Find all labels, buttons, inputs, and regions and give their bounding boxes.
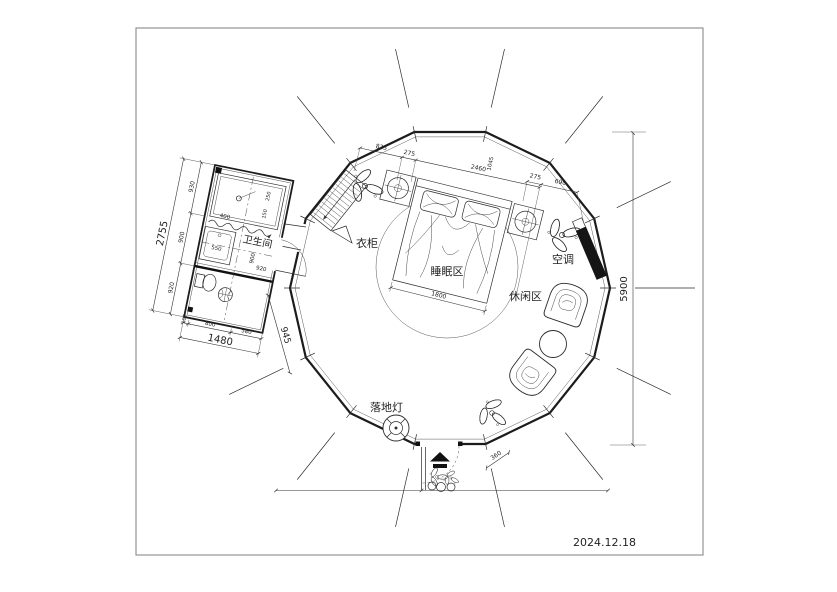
wardrobe-label: 衣柜: [356, 236, 378, 250]
entrance-opening: [417, 441, 461, 449]
date-text: 2024.12.18: [573, 536, 636, 549]
sleeping-label: 睡眠区: [431, 265, 464, 278]
side-table: [540, 331, 567, 358]
dim-5900: 5900: [619, 276, 630, 301]
wall-post: [187, 307, 193, 313]
door-jamb-right: [458, 442, 463, 447]
floorplan-page: 930 900 920 2755 100 800 580 1480 400 25…: [0, 0, 837, 592]
floor-lamp: [383, 415, 409, 441]
door-jamb-left: [416, 442, 421, 447]
entrance-arrow-bar: [433, 464, 447, 468]
ac-label: 空调: [552, 252, 574, 266]
lamp-label: 落地灯: [370, 401, 403, 414]
leisure-label: 休闲区: [509, 289, 542, 303]
